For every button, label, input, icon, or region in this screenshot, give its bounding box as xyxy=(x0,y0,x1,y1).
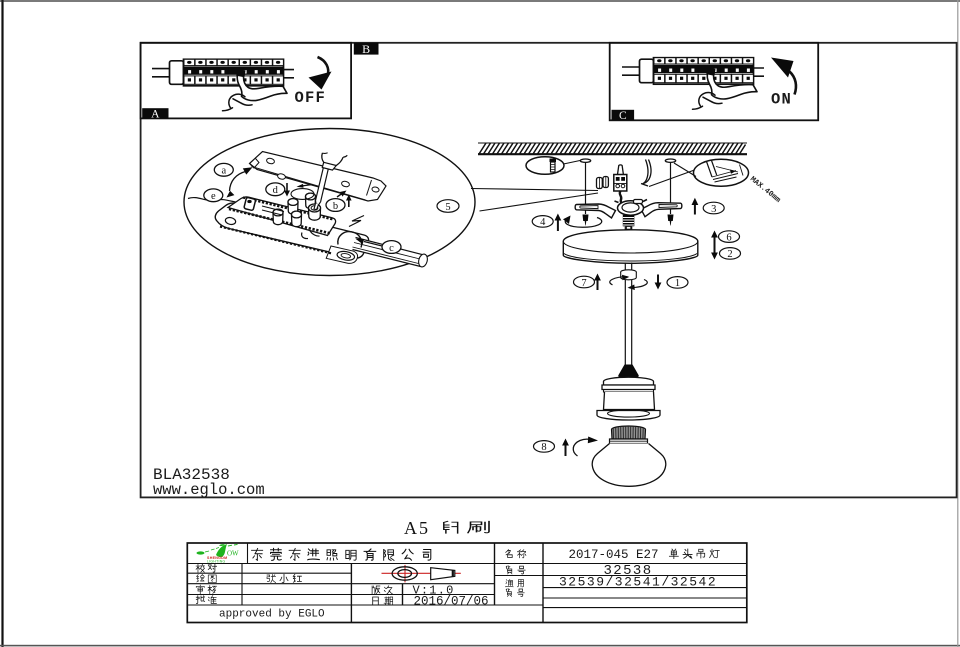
svg-text:A5: A5 xyxy=(404,518,430,538)
svg-text:ON: ON xyxy=(771,91,792,109)
svg-text:6: 6 xyxy=(726,232,731,243)
svg-text:a: a xyxy=(221,166,226,177)
svg-text:C: C xyxy=(619,110,627,122)
svg-text:www.eglo.com: www.eglo.com xyxy=(153,481,265,499)
svg-text:OW: OW xyxy=(227,550,239,558)
svg-text:c: c xyxy=(389,243,394,254)
svg-text:d: d xyxy=(273,185,279,196)
svg-text:2017-045 E27: 2017-045 E27 xyxy=(569,548,659,562)
svg-text:2: 2 xyxy=(727,249,732,260)
svg-text:e: e xyxy=(211,191,216,202)
svg-text:7: 7 xyxy=(581,278,586,289)
svg-text:b: b xyxy=(333,201,338,212)
svg-text:8: 8 xyxy=(541,442,546,453)
svg-text:32539/32541/32542: 32539/32541/32542 xyxy=(559,575,717,590)
svg-text:2016/07/06: 2016/07/06 xyxy=(414,595,489,609)
svg-text:approved by EGLO: approved by EGLO xyxy=(219,609,325,621)
svg-text:1: 1 xyxy=(675,278,680,289)
svg-text:OFF: OFF xyxy=(295,89,327,107)
svg-text:A: A xyxy=(151,109,160,121)
svg-text:3: 3 xyxy=(711,204,716,215)
svg-text:5: 5 xyxy=(445,202,450,213)
svg-text:4: 4 xyxy=(540,217,546,228)
svg-text:LIGHTING: LIGHTING xyxy=(207,559,225,563)
svg-text:B: B xyxy=(362,42,370,56)
